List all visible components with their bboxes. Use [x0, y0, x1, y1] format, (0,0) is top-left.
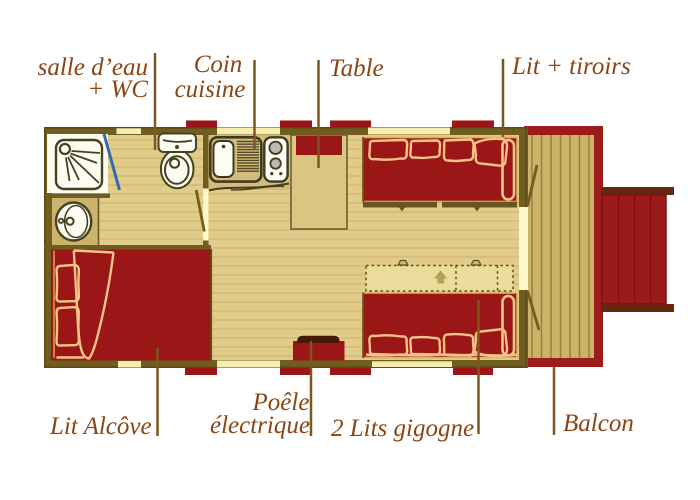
svg-text:Coin: Coin	[194, 51, 243, 78]
svg-text:2 Lits gigogne: 2 Lits gigogne	[331, 415, 474, 442]
svg-text:électrique: électrique	[210, 412, 310, 439]
svg-text:Table: Table	[329, 55, 384, 82]
svg-text:+ WC: + WC	[87, 76, 148, 103]
svg-text:cuisine: cuisine	[175, 76, 246, 103]
svg-text:Lit + tiroirs: Lit + tiroirs	[511, 53, 631, 80]
svg-text:Balcon: Balcon	[563, 410, 634, 437]
svg-text:Lit Alcôve: Lit Alcôve	[49, 413, 152, 440]
